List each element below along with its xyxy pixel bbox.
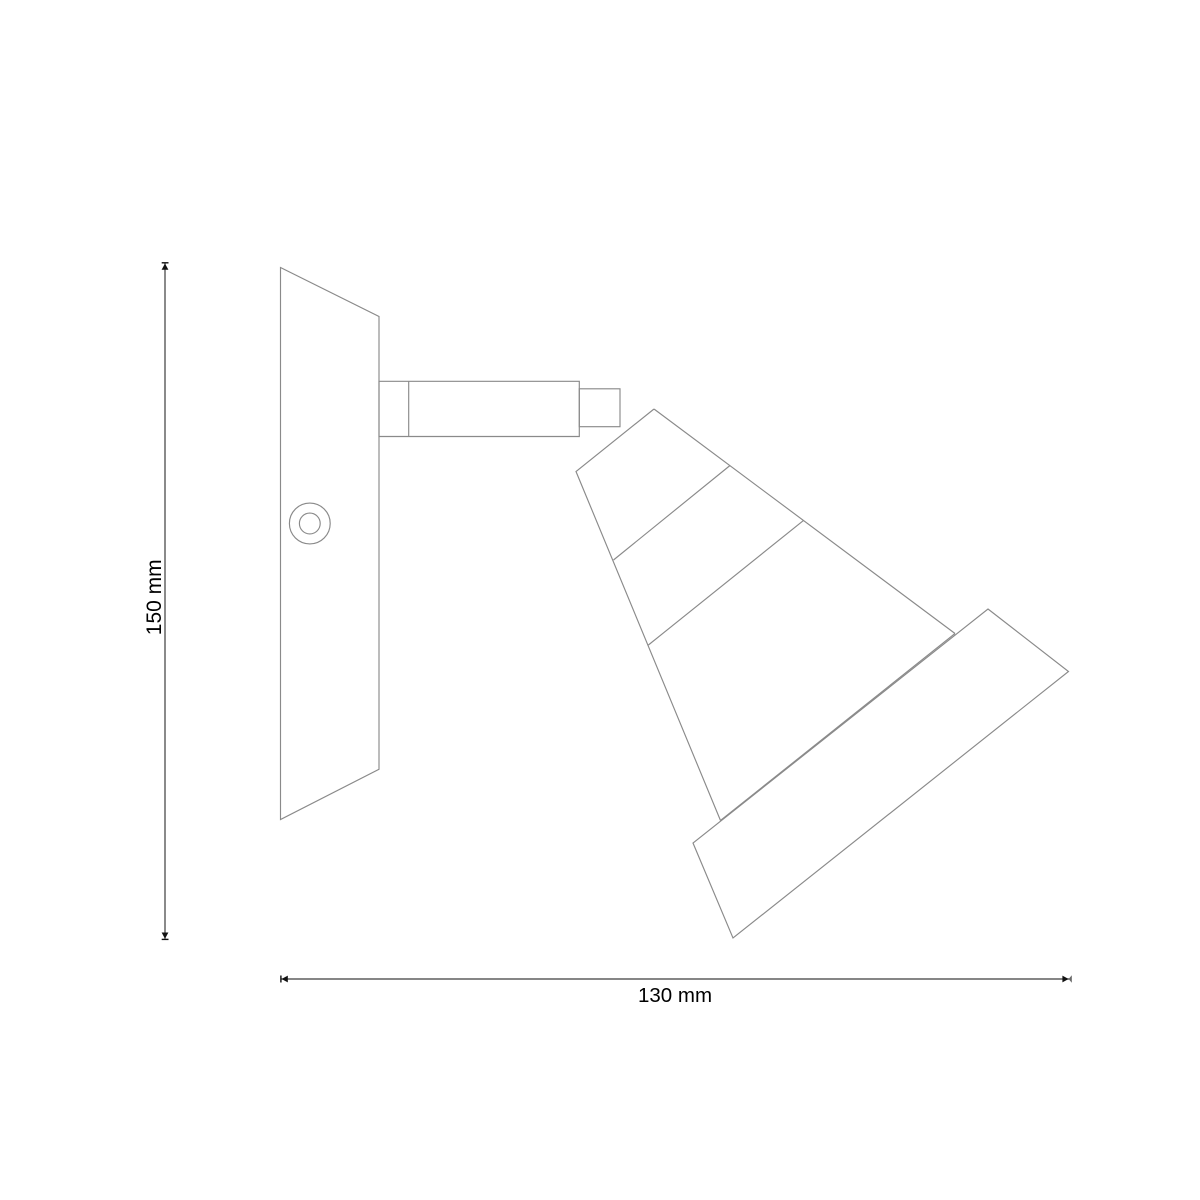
svg-text:130 mm: 130 mm [638,984,712,1007]
svg-text:150 mm: 150 mm [143,559,166,635]
